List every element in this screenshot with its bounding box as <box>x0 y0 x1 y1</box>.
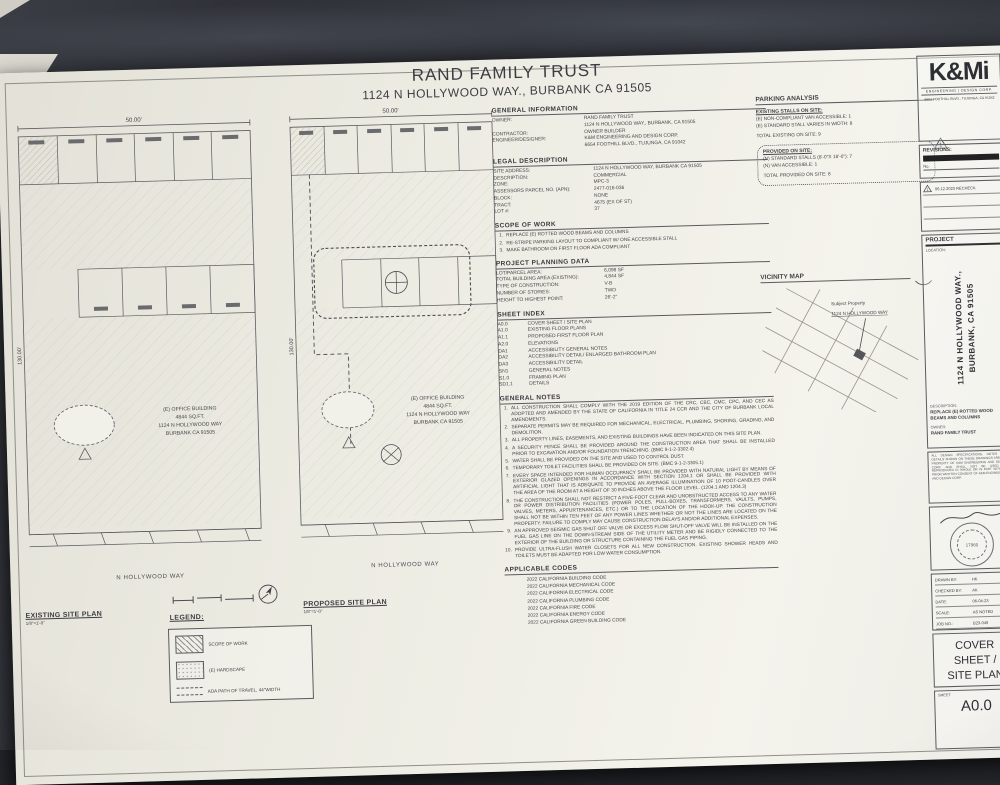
engineer-stamp-seal: 17960 <box>949 522 994 567</box>
sheet-number-box: SHEET A0.0 <box>934 688 1000 749</box>
general-note-number: 1. <box>500 407 508 425</box>
drawing-info-row-value: AK <box>972 587 977 592</box>
scope-item-number: 1. <box>495 234 503 240</box>
location-line: BURBANK, CA 91505 <box>964 270 979 384</box>
section-legal-description: LEGAL DESCRIPTION SITE ADDRESS:1124 N HO… <box>493 151 769 217</box>
legal-description-row-label: LOT #: <box>494 207 590 216</box>
disclaimer-box: ALL DESIGN SPECIFICATIONS, NOTES AND DET… <box>927 449 1000 503</box>
revision-table: 1 06.12.2023 RECHECK <box>920 179 1000 231</box>
parking-existing-lines: (E) NON-COMPLIANT VAN ACCESSIBLE: 1(E) S… <box>756 112 934 131</box>
general-note-number: 2. <box>500 426 508 438</box>
section-general-notes: GENERAL NOTES 1.ALL CONSTRUCTION SHALL C… <box>500 388 778 560</box>
proposed-site-plan-drawing: 50.00' 130.00' <box>281 99 512 565</box>
svg-text:1: 1 <box>926 188 928 192</box>
drawing-info-row-value: B23-049 <box>973 620 988 625</box>
legend-item-hardscape: (E) HARDSCAPE <box>176 658 306 680</box>
project-location: 1124 N HOLLYWOOD WAY., BURBANK, CA 91505 <box>926 253 1000 403</box>
sheet-title-line: COVER <box>937 637 1000 654</box>
drawing-info-row-label: DATE: <box>935 598 969 604</box>
applicable-codes-items: 2022 CALIFORNIA BUILDING CODE2022 CALIFO… <box>505 570 780 628</box>
drawing-info-row-label: CHECKED BY: <box>935 587 969 593</box>
general-note-number: 10. <box>504 549 512 561</box>
parking-total-provided: TOTAL PROVIDED ON SITE: 8 <box>763 169 930 181</box>
vicinity-map: VICINITY MAP Subject Property 1124 N HOL… <box>760 269 942 420</box>
dim-depth-proposed: 130.00' <box>289 337 295 355</box>
existing-site-plan-drawing: 50.00' 130.00' ( <box>10 108 277 575</box>
section-applicable-codes: APPLICABLE CODES 2022 CALIFORNIA BUILDIN… <box>504 559 780 628</box>
parking-provided-lines: (N) STANDARD STALLS (8'-0"X 18'-0"): 7(N… <box>763 152 930 171</box>
firm-address: 6654 FOOTHILL BLVD., TUJUNGA, CA 91042 <box>921 96 997 103</box>
legend-heading: LEGEND: <box>170 614 204 622</box>
drawing-info-rows: DRAWN BY:HKCHECKED BY:AKDATE:06-04-23SCA… <box>935 572 1000 629</box>
general-note-number: 5. <box>501 459 509 465</box>
dim-depth-existing: 130.00' <box>17 347 23 365</box>
legend-label: ADA PATH OF TRAVEL, 44"WIDTH <box>208 686 281 693</box>
general-note-number: 8. <box>502 499 511 528</box>
vicinity-map-drawing: Subject Property 1124 N HOLLYWOOD WAY <box>761 280 943 415</box>
firm-tagline: ENGINEERING | DESIGN CORP. <box>921 86 997 96</box>
owner-text: RAND FAMILY TRUST <box>931 428 1000 436</box>
parking-analysis: PARKING ANALYSIS EXISTING STALLS ON SITE… <box>755 91 935 186</box>
drawing-info-row-value: AS NOTED <box>973 608 994 614</box>
project-label: PROJECT <box>925 236 1000 247</box>
revision-text: 06.12.2023 RECHECK <box>935 185 976 191</box>
scope-of-work-swatch <box>175 635 203 654</box>
general-note-number: 7. <box>502 474 511 498</box>
sheet-title-box: COVER SHEET / SITE PLAN <box>932 631 1000 687</box>
sheet-title-line: SHEET / <box>937 652 1000 669</box>
project-box: PROJECT LOCATION: 1124 N HOLLYWOOD WAY.,… <box>921 232 1000 448</box>
drawing-info-row-value: 06-04-23 <box>972 598 988 603</box>
revisions-no-label: No. <box>923 162 999 171</box>
revision-triangle-icon: 1 <box>923 184 932 192</box>
building-label-line: 4844 SQ.FT. <box>175 414 204 421</box>
scale-bar <box>169 582 282 611</box>
dim-width-existing: 50.00' <box>126 117 142 123</box>
scope-item-number: 3. <box>495 248 503 254</box>
scope-item-number: 2. <box>495 241 503 247</box>
disclaimer-text: ALL DESIGN SPECIFICATIONS, NOTES AND DET… <box>931 452 1000 481</box>
sheet-number: A0.0 <box>938 696 1000 715</box>
building-label-line: 4844 SQ.FT. <box>423 403 452 410</box>
legend-label: (E) HARDSCAPE <box>209 666 245 672</box>
legend-box: SCOPE OF WORK (E) HARDSCAPE ADA PATH OF … <box>168 625 314 703</box>
legend-item-ada-path: ADA PATH OF TRAVEL, 44"WIDTH <box>177 684 307 696</box>
legend-item-scope: SCOPE OF WORK <box>175 632 305 654</box>
drawing-info-box: DRAWN BY:HKCHECKED BY:AKDATE:06-04-23SCA… <box>931 571 1000 630</box>
paper-sheet: RAND FAMILY TRUST 1124 N HOLLYWOOD WAY.,… <box>0 45 1000 785</box>
hardscape-swatch <box>176 661 204 680</box>
general-note-number: 3. <box>501 439 509 445</box>
planning-data-row-label: HEIGHT TO HIGHEST POINT: <box>497 295 601 305</box>
proposed-plan-title: PROPOSED SITE PLAN 1/8"=1'-0" <box>303 599 387 614</box>
legal-description-rows: SITE ADDRESS:1124 N HOLLYWOOD WAY, BURBA… <box>493 162 768 217</box>
planning-data-rows: LOT/PARCEL AREA:6,098 SFTOTAL BUILDING A… <box>496 264 771 305</box>
section-sheet-index: SHEET INDEX A0.0COVER SHEET / SITE PLANA… <box>497 304 773 390</box>
drawing-info-row-label: SCALE: <box>936 609 970 615</box>
general-info-row-label <box>493 143 581 152</box>
stamp-box: 17960 <box>929 504 1000 570</box>
general-note-number: 4. <box>501 446 509 458</box>
general-notes-items: 1.ALL CONSTRUCTION SHALL COMPLY WITH THE… <box>500 399 778 560</box>
notes-column: GENERAL INFORMATION OWNER:RAND FAMILY TR… <box>492 100 781 634</box>
vicinity-note: 1124 N HOLLYWOOD WAY <box>831 310 888 317</box>
section-general-information: GENERAL INFORMATION OWNER:RAND FAMILY TR… <box>492 100 767 152</box>
ada-path-swatch <box>177 687 203 696</box>
existing-plan-title: EXISTING SITE PLAN 1/8"=1'-0" <box>25 611 102 626</box>
drawing-info-row: JOB NO.:B23-049 <box>936 616 1000 629</box>
drawing-info-row-label: JOB NO.: <box>936 620 970 626</box>
sheet-title-line: SITE PLAN <box>937 667 1000 684</box>
general-note-number: 9. <box>503 530 511 548</box>
sheet-index-row-no: SD1.1 <box>499 382 525 389</box>
sheet-index-rows: A0.0COVER SHEET / SITE PLANA1.0EXISTING … <box>498 315 774 390</box>
stamp-number: 17960 <box>966 542 979 547</box>
revisions-bar <box>923 154 999 162</box>
general-info-rows: OWNER:RAND FAMILY TRUST1124 N HOLLYWOOD … <box>492 111 767 152</box>
dim-width-proposed: 50.00' <box>382 108 398 114</box>
general-note-number: 6. <box>502 467 510 473</box>
legend-label: SCOPE OF WORK <box>208 640 247 646</box>
parking-provided-cloud: 1 PROVIDED ON SITE: (N) STANDARD STALLS … <box>757 140 936 186</box>
compass-icon <box>259 585 277 603</box>
location-label: LOCATION: <box>926 247 1000 253</box>
drawing-info-row-value: HK <box>972 576 978 581</box>
vicinity-note: Subject Property <box>831 300 866 306</box>
description-text: REPLACE (E) ROTTED WOOD BEAMS AND COLUMN… <box>930 407 1000 421</box>
parking-total-existing: TOTAL EXISTING ON SITE: 9 <box>756 129 934 141</box>
firm-logo: K&Mi <box>920 59 997 86</box>
revisions-box: REVISIONS: No. <box>919 142 1000 178</box>
section-project-planning-data: PROJECT PLANNING DATA LOT/PARCEL AREA:6,… <box>496 253 771 305</box>
revisions-label: REVISIONS: <box>923 146 999 154</box>
drawing-info-row-label: DRAWN BY: <box>935 576 969 582</box>
firm-logo-box: K&Mi ENGINEERING | DESIGN CORP. 6654 FOO… <box>916 53 1000 141</box>
revision-row-empty <box>924 217 1000 230</box>
section-scope-of-work: SCOPE OF WORK 1.REPLACE (E) ROTTED WOOD … <box>495 215 770 254</box>
